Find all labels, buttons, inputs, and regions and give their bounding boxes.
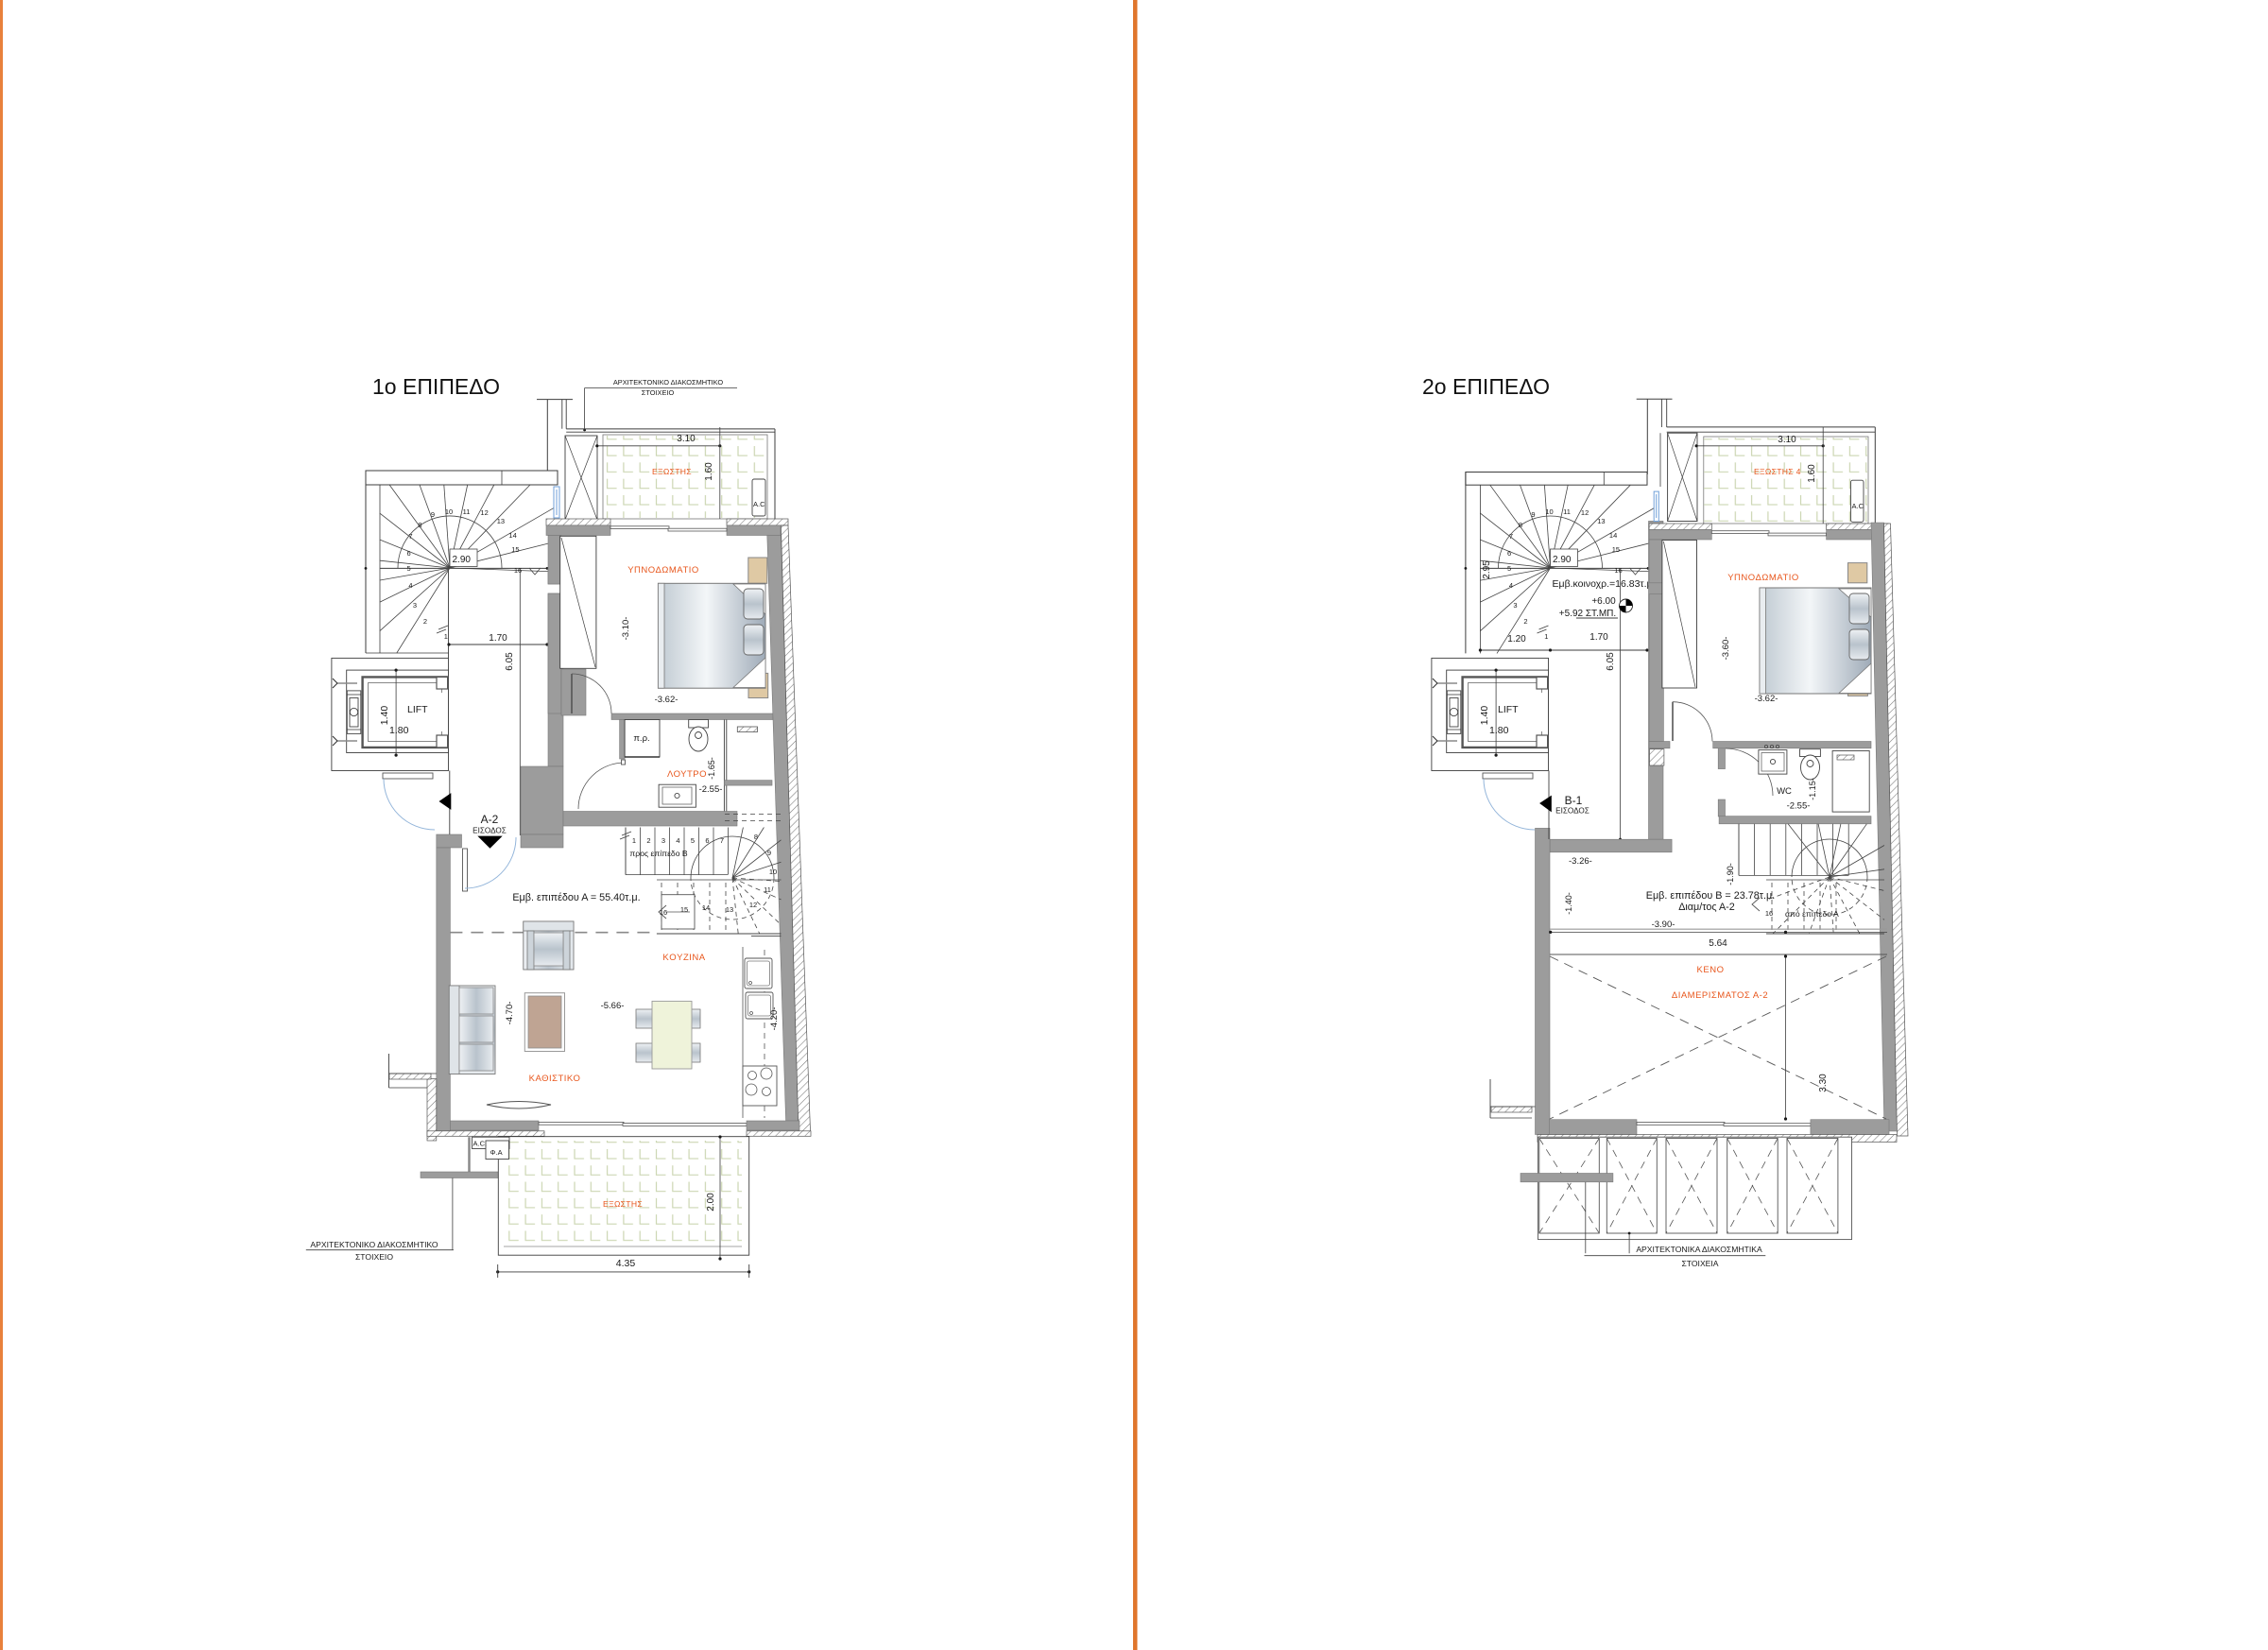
svg-text:ΕΞΩΣΤΗΣ: ΕΞΩΣΤΗΣ bbox=[603, 1199, 643, 1209]
svg-text:3: 3 bbox=[413, 601, 417, 610]
svg-text:6: 6 bbox=[407, 549, 411, 558]
svg-text:14: 14 bbox=[702, 903, 710, 912]
svg-text:5: 5 bbox=[691, 836, 695, 845]
svg-text:9: 9 bbox=[1531, 510, 1535, 519]
svg-text:1.70: 1.70 bbox=[489, 633, 507, 644]
svg-text:6: 6 bbox=[1507, 549, 1511, 558]
svg-text:1ο ΕΠΙΠΕΔΟ: 1ο ΕΠΙΠΕΔΟ bbox=[372, 374, 500, 399]
svg-text:9: 9 bbox=[767, 849, 771, 857]
svg-text:8: 8 bbox=[1519, 521, 1522, 529]
svg-text:4.35: 4.35 bbox=[616, 1258, 636, 1269]
svg-text:-4.20-: -4.20- bbox=[769, 1007, 780, 1031]
svg-text:+5.92 ΣΤ.ΜΠ.: +5.92 ΣΤ.ΜΠ. bbox=[1559, 609, 1616, 619]
svg-text:ΚΑΘΙΣΤΙΚΟ: ΚΑΘΙΣΤΙΚΟ bbox=[529, 1074, 581, 1084]
svg-text:7: 7 bbox=[408, 532, 412, 541]
svg-text:-1.40-: -1.40- bbox=[1564, 892, 1573, 915]
svg-text:-3.26-: -3.26- bbox=[1569, 856, 1592, 867]
svg-text:1.20: 1.20 bbox=[1507, 634, 1526, 645]
svg-text:3.10: 3.10 bbox=[1778, 435, 1796, 445]
svg-text:2: 2 bbox=[646, 836, 650, 845]
svg-text:10: 10 bbox=[445, 507, 453, 516]
svg-text:1: 1 bbox=[444, 632, 448, 641]
svg-text:1.80: 1.80 bbox=[1489, 725, 1509, 736]
svg-text:4: 4 bbox=[676, 836, 679, 845]
svg-text:4: 4 bbox=[1509, 581, 1513, 590]
svg-text:ΕΙΣΟΔΟΣ: ΕΙΣΟΔΟΣ bbox=[1555, 807, 1589, 816]
svg-text:LIFT: LIFT bbox=[407, 704, 428, 715]
svg-text:-1.90-: -1.90- bbox=[1726, 863, 1735, 885]
svg-text:5: 5 bbox=[1507, 564, 1511, 573]
svg-text:6.05: 6.05 bbox=[505, 652, 515, 671]
svg-text:ΥΠΝΟΔΩΜΑΤΙΟ: ΥΠΝΟΔΩΜΑΤΙΟ bbox=[627, 565, 699, 576]
svg-text:12: 12 bbox=[749, 901, 757, 909]
svg-text:16: 16 bbox=[1765, 909, 1773, 918]
svg-text:-1.15-: -1.15- bbox=[1808, 778, 1817, 800]
svg-text:ΑΡΧΙΤΕΚΤΟΝΙΚΟ ΔΙΑΚΟΣΜΗΤΙΚΟ: ΑΡΧΙΤΕΚΤΟΝΙΚΟ ΔΙΑΚΟΣΜΗΤΙΚΟ bbox=[310, 1240, 438, 1249]
svg-text:13: 13 bbox=[497, 517, 505, 525]
svg-text:1.80: 1.80 bbox=[389, 725, 409, 736]
svg-text:16: 16 bbox=[514, 566, 522, 575]
svg-text:16: 16 bbox=[1614, 566, 1622, 575]
svg-text:ΕΞΩΣΤΗΣ: ΕΞΩΣΤΗΣ bbox=[652, 467, 692, 476]
svg-text:ΥΠΝΟΔΩΜΑΤΙΟ: ΥΠΝΟΔΩΜΑΤΙΟ bbox=[1727, 573, 1799, 583]
svg-text:3.30: 3.30 bbox=[1818, 1074, 1829, 1092]
svg-text:2: 2 bbox=[1523, 617, 1527, 626]
svg-text:Φ.Α: Φ.Α bbox=[490, 1148, 503, 1157]
svg-text:10: 10 bbox=[1545, 507, 1553, 516]
svg-text:3: 3 bbox=[1513, 601, 1517, 610]
svg-text:WC: WC bbox=[1777, 786, 1792, 797]
svg-text:-1.65-: -1.65- bbox=[707, 757, 716, 780]
svg-text:2.90: 2.90 bbox=[453, 555, 472, 565]
svg-text:6.05: 6.05 bbox=[1606, 652, 1616, 671]
svg-text:από επίπεδο Α: από επίπεδο Α bbox=[1785, 909, 1839, 919]
svg-text:10: 10 bbox=[769, 868, 777, 876]
svg-text:13: 13 bbox=[1597, 517, 1605, 525]
svg-text:π.ρ.: π.ρ. bbox=[633, 733, 649, 744]
svg-text:2.90: 2.90 bbox=[1553, 555, 1572, 565]
svg-text:13: 13 bbox=[726, 905, 733, 914]
svg-text:-4.70-: -4.70- bbox=[505, 1002, 515, 1025]
svg-text:4: 4 bbox=[408, 581, 412, 590]
svg-text:-3.62-: -3.62- bbox=[1755, 694, 1778, 704]
svg-text:ΑΡΧΙΤΕΚΤΟΝΙΚΟ ΔΙΑΚΟΣΜΗΤΙΚΟ: ΑΡΧΙΤΕΚΤΟΝΙΚΟ ΔΙΑΚΟΣΜΗΤΙΚΟ bbox=[613, 378, 724, 387]
svg-text:14: 14 bbox=[508, 531, 516, 540]
svg-text:14: 14 bbox=[1609, 531, 1617, 540]
svg-text:+6.00: +6.00 bbox=[1591, 596, 1616, 607]
svg-text:1.60: 1.60 bbox=[1807, 464, 1817, 483]
svg-text:1.40: 1.40 bbox=[1479, 706, 1490, 726]
svg-text:ΔΙΑΜΕΡΙΣΜΑΤΟΣ Α-2: ΔΙΑΜΕΡΙΣΜΑΤΟΣ Α-2 bbox=[1672, 990, 1768, 1001]
svg-text:12: 12 bbox=[1581, 508, 1589, 517]
svg-text:12: 12 bbox=[480, 508, 488, 517]
svg-text:3: 3 bbox=[661, 836, 665, 845]
svg-text:11: 11 bbox=[1563, 507, 1571, 516]
svg-text:11: 11 bbox=[463, 507, 471, 516]
svg-text:15: 15 bbox=[680, 905, 688, 914]
svg-text:1.40: 1.40 bbox=[379, 706, 390, 726]
svg-text:A.C: A.C bbox=[753, 500, 765, 508]
svg-text:16: 16 bbox=[660, 908, 667, 917]
svg-text:3.10: 3.10 bbox=[677, 434, 696, 444]
svg-text:-2.55-: -2.55- bbox=[1787, 801, 1811, 812]
svg-text:-3.90-: -3.90- bbox=[1652, 920, 1675, 930]
svg-text:-3.62-: -3.62- bbox=[655, 695, 679, 705]
svg-text:Διαμ/τος Α-2: Διαμ/τος Α-2 bbox=[1678, 902, 1735, 913]
svg-text:A.C: A.C bbox=[1852, 502, 1864, 510]
svg-text:Εμβ. επιπέδου Α = 55.40τ.μ.: Εμβ. επιπέδου Α = 55.40τ.μ. bbox=[512, 892, 640, 903]
svg-text:1.70: 1.70 bbox=[1589, 632, 1608, 643]
svg-text:Εμβ.κοινοχρ.=16.83τ.μ.: Εμβ.κοινοχρ.=16.83τ.μ. bbox=[1553, 578, 1656, 590]
svg-text:9: 9 bbox=[431, 510, 435, 519]
svg-text:2ο ΕΠΙΠΕΔΟ: 2ο ΕΠΙΠΕΔΟ bbox=[1422, 374, 1550, 399]
svg-text:KOYZINA: KOYZINA bbox=[662, 953, 705, 963]
svg-text:ΑΡΧΙΤΕΚΤΟΝΙΚΑ ΔΙΑΚΟΣΜΗΤΙΚΑ: ΑΡΧΙΤΕΚΤΟΝΙΚΑ ΔΙΑΚΟΣΜΗΤΙΚΑ bbox=[1636, 1245, 1762, 1254]
svg-text:11: 11 bbox=[764, 885, 771, 894]
svg-text:8: 8 bbox=[754, 833, 758, 841]
svg-text:1.60: 1.60 bbox=[704, 462, 714, 481]
svg-text:KENO: KENO bbox=[1697, 965, 1725, 975]
svg-text:1: 1 bbox=[1544, 632, 1548, 641]
svg-text:Εμβ. επιπέδου Β = 23.78τ.μ.: Εμβ. επιπέδου Β = 23.78τ.μ. bbox=[1646, 890, 1776, 902]
svg-text:-3.60-: -3.60- bbox=[1721, 637, 1731, 661]
svg-text:LIFT: LIFT bbox=[1498, 704, 1519, 715]
svg-text:7: 7 bbox=[1509, 532, 1513, 541]
svg-text:2: 2 bbox=[423, 617, 427, 626]
svg-text:ΣΤΟΙΧΕΙΟ: ΣΤΟΙΧΕΙΟ bbox=[355, 1252, 393, 1262]
svg-text:15: 15 bbox=[1612, 545, 1620, 554]
svg-text:ΕΞΩΣΤΗΣ 4: ΕΞΩΣΤΗΣ 4 bbox=[1754, 467, 1801, 476]
svg-text:2.95: 2.95 bbox=[1482, 560, 1492, 579]
svg-text:-2.55-: -2.55- bbox=[699, 784, 723, 795]
svg-text:προς επίπεδο Β: προς επίπεδο Β bbox=[629, 849, 688, 858]
svg-text:2.00: 2.00 bbox=[706, 1193, 716, 1212]
svg-text:B-1: B-1 bbox=[1565, 794, 1583, 807]
svg-text:ΣΤΟΙΧΕΙΑ: ΣΤΟΙΧΕΙΑ bbox=[1681, 1259, 1718, 1268]
svg-text:8: 8 bbox=[418, 521, 421, 529]
svg-text:1: 1 bbox=[632, 836, 636, 845]
svg-text:ΕΙΣΟΔΟΣ: ΕΙΣΟΔΟΣ bbox=[472, 827, 507, 835]
svg-text:-5.66-: -5.66- bbox=[601, 1001, 625, 1011]
svg-text:ΣΤΟΙΧΕΙΟ: ΣΤΟΙΧΕΙΟ bbox=[642, 388, 675, 397]
svg-text:5.64: 5.64 bbox=[1709, 938, 1727, 949]
svg-text:15: 15 bbox=[511, 545, 519, 554]
svg-text:ΛΟΥΤΡΟ: ΛΟΥΤΡΟ bbox=[667, 769, 707, 780]
svg-text:A-2: A-2 bbox=[481, 813, 499, 826]
svg-text:-3.10-: -3.10- bbox=[621, 617, 631, 641]
svg-text:5: 5 bbox=[407, 564, 411, 573]
svg-text:A.C.: A.C. bbox=[473, 1140, 488, 1148]
